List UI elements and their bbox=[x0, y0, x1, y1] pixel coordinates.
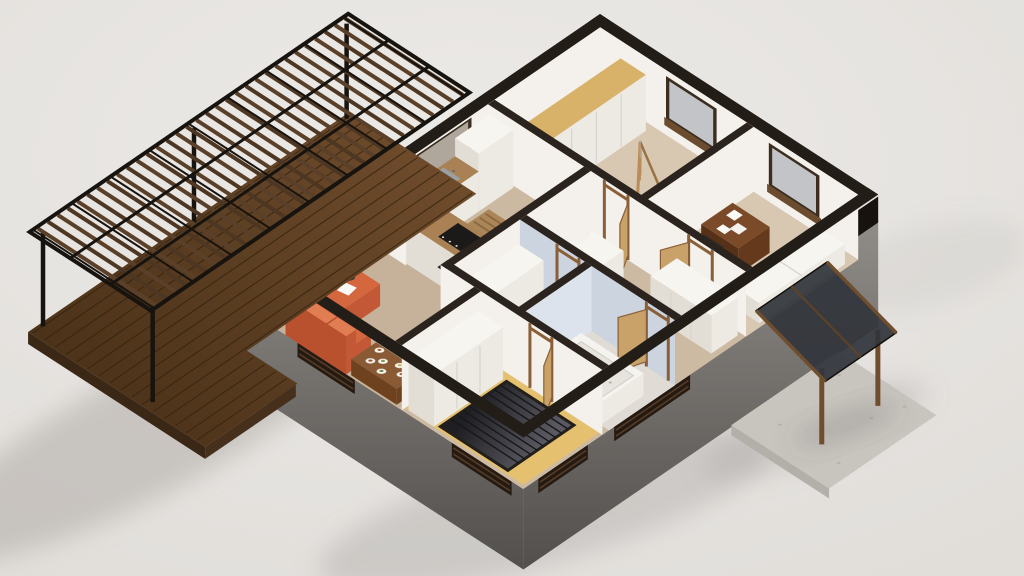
floorplan-scene-canvas bbox=[0, 0, 1024, 576]
floorplan-3d-render bbox=[0, 0, 1024, 576]
